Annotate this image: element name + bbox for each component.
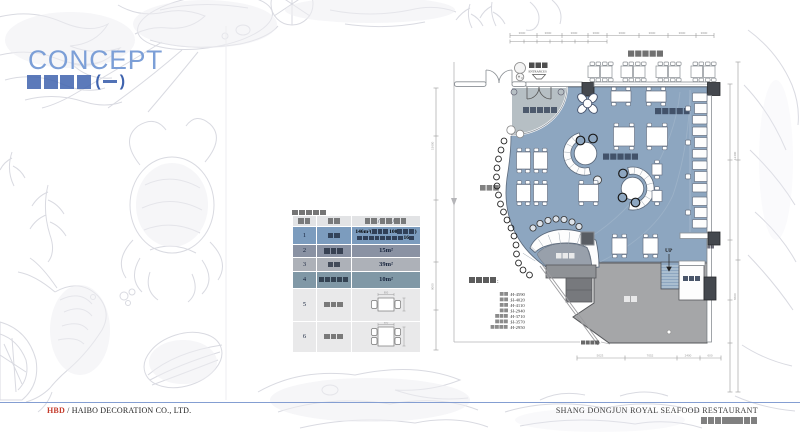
svg-text:ENTRANCES: ENTRANCES: [529, 70, 547, 74]
svg-text:2400: 2400: [685, 354, 692, 358]
svg-text:3600: 3600: [701, 31, 708, 35]
svg-text:800: 800: [384, 290, 389, 294]
svg-text:3600: 3600: [593, 31, 600, 35]
svg-text::H-4590: :H-4590: [510, 292, 526, 297]
svg-text:3600: 3600: [649, 31, 656, 35]
svg-text:3600: 3600: [679, 31, 686, 35]
svg-text::: :: [497, 279, 499, 285]
svg-text:3600: 3600: [545, 31, 552, 35]
svg-text::H-4020: :H-4020: [510, 298, 526, 303]
svg-text:3600: 3600: [571, 31, 578, 35]
svg-text:9000: 9000: [431, 283, 435, 290]
svg-text::H-2950: :H-2950: [510, 325, 526, 330]
svg-text:7052: 7052: [647, 354, 654, 358]
svg-text:15600: 15600: [431, 141, 435, 150]
svg-text:12400: 12400: [733, 151, 737, 160]
svg-text:5023: 5023: [597, 354, 604, 358]
svg-text::H-4110: :H-4110: [510, 303, 526, 308]
svg-text::H-2940: :H-2940: [510, 309, 526, 314]
svg-text:8600: 8600: [733, 293, 737, 300]
svg-text::H-3710: :H-3710: [510, 314, 526, 319]
svg-text:3600: 3600: [519, 31, 526, 35]
svg-text::H-3570: :H-3570: [510, 320, 526, 325]
svg-text:800: 800: [384, 322, 389, 324]
svg-text:600: 600: [707, 354, 712, 358]
svg-text:UP: UP: [665, 248, 673, 254]
svg-text:3600: 3600: [619, 31, 626, 35]
